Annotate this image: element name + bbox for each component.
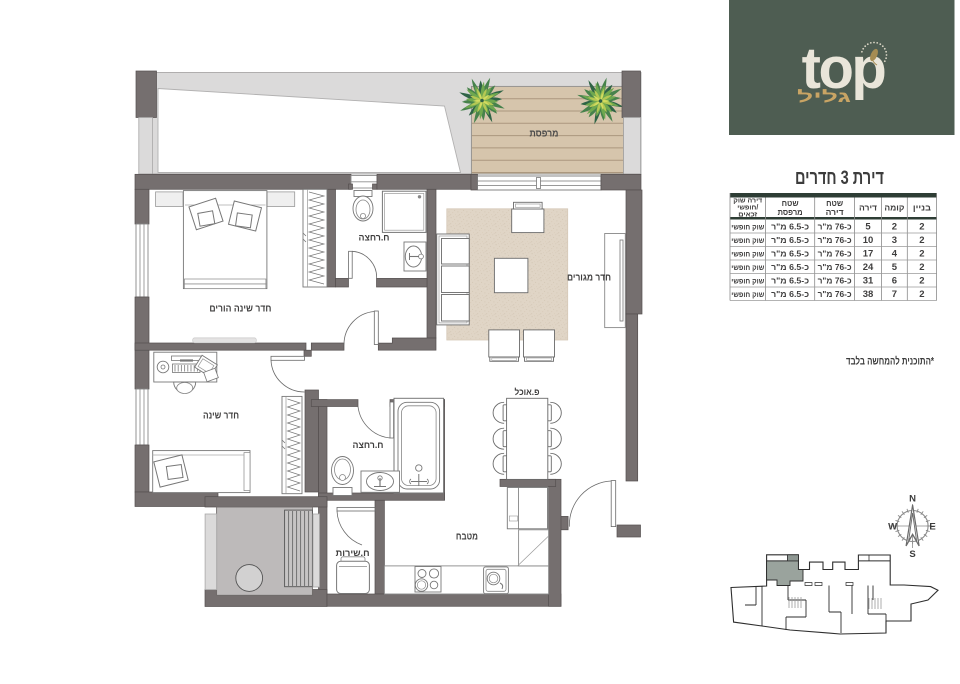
svg-text:חדר שינה: חדר שינה: [203, 411, 239, 422]
svg-text:6: 6: [892, 275, 897, 286]
svg-text:דירה: דירה: [859, 203, 877, 213]
svg-text:10: 10: [863, 235, 874, 246]
svg-text:ח.שירות: ח.שירות: [336, 548, 370, 558]
svg-text:W: W: [888, 522, 897, 533]
svg-text:שוק חופשי: שוק חופשי: [731, 222, 764, 231]
svg-text:כ-6.5 מ"ר: כ-6.5 מ"ר: [771, 221, 809, 231]
svg-text:ח.רחצה: ח.רחצה: [353, 440, 384, 450]
svg-text:דירה: דירה: [826, 207, 844, 217]
svg-text:2: 2: [919, 248, 924, 259]
svg-text:דירת 3 חדרים: דירת 3 חדרים: [795, 167, 884, 189]
svg-text:מרפסת: מרפסת: [530, 129, 559, 140]
svg-text:4: 4: [892, 248, 898, 259]
svg-text:3: 3: [892, 235, 897, 246]
svg-text:שוק חופשי: שוק חופשי: [731, 236, 764, 245]
svg-text:כ-6.5 מ"ר: כ-6.5 מ"ר: [771, 275, 809, 285]
svg-text:זכאים: זכאים: [738, 212, 757, 219]
svg-text:כ-6.5 מ"ר: כ-6.5 מ"ר: [771, 248, 809, 258]
svg-text:בניין: בניין: [913, 203, 932, 213]
svg-text:שוק חופשי: שוק חופשי: [731, 290, 764, 299]
svg-text:כ-76 מ"ר: כ-76 מ"ר: [818, 262, 852, 272]
svg-text:כ-76 מ"ר: כ-76 מ"ר: [818, 248, 852, 258]
svg-text:דירה שוק: דירה שוק: [733, 198, 762, 205]
svg-text:2: 2: [892, 221, 897, 232]
svg-text:כ-6.5 מ"ר: כ-6.5 מ"ר: [771, 262, 809, 272]
svg-text:כ-6.5 מ"ר: כ-6.5 מ"ר: [771, 235, 809, 245]
svg-text:2: 2: [919, 289, 924, 300]
svg-text:שוק חופשי: שוק חופשי: [731, 276, 764, 285]
svg-text:24: 24: [863, 262, 874, 273]
svg-text:5: 5: [865, 221, 871, 232]
svg-text:S: S: [909, 549, 915, 560]
svg-text:38: 38: [863, 289, 874, 300]
svg-text:חדר מגורים: חדר מגורים: [567, 273, 611, 284]
svg-text:*התוכנית להמחשה בלבד: *התוכנית להמחשה בלבד: [846, 355, 935, 368]
svg-text:כ-76 מ"ר: כ-76 מ"ר: [818, 235, 852, 245]
svg-text:ח.רחצה: ח.רחצה: [359, 233, 390, 243]
svg-text:כ-76 מ"ר: כ-76 מ"ר: [818, 275, 852, 285]
svg-text:2: 2: [919, 221, 924, 232]
svg-text:31: 31: [863, 275, 874, 286]
svg-text:N: N: [909, 494, 916, 505]
svg-text:פ.אוכל: פ.אוכל: [515, 387, 540, 397]
svg-text:כ-76 מ"ר: כ-76 מ"ר: [818, 289, 852, 299]
svg-text:שוק חופשי: שוק חופשי: [731, 249, 764, 258]
svg-text:מטבח: מטבח: [456, 532, 478, 543]
svg-text:17: 17: [863, 248, 874, 259]
svg-text:2: 2: [919, 262, 924, 273]
svg-text:E: E: [929, 522, 935, 533]
svg-text:כ-6.5 מ"ר: כ-6.5 מ"ר: [771, 289, 809, 299]
svg-text:כ-76 מ"ר: כ-76 מ"ר: [818, 221, 852, 231]
svg-text:קומה: קומה: [884, 203, 904, 213]
svg-text:5: 5: [892, 262, 898, 273]
svg-text:מרפסת: מרפסת: [778, 207, 803, 217]
svg-text:גליל: גליל: [797, 88, 852, 106]
svg-text:חופשי/: חופשי/: [737, 205, 758, 212]
svg-text:2: 2: [919, 275, 924, 286]
svg-text:חדר שינה הורים: חדר שינה הורים: [209, 304, 271, 315]
svg-text:2: 2: [919, 235, 924, 246]
svg-text:7: 7: [892, 289, 897, 300]
svg-text:שוק חופשי: שוק חופשי: [731, 263, 764, 272]
